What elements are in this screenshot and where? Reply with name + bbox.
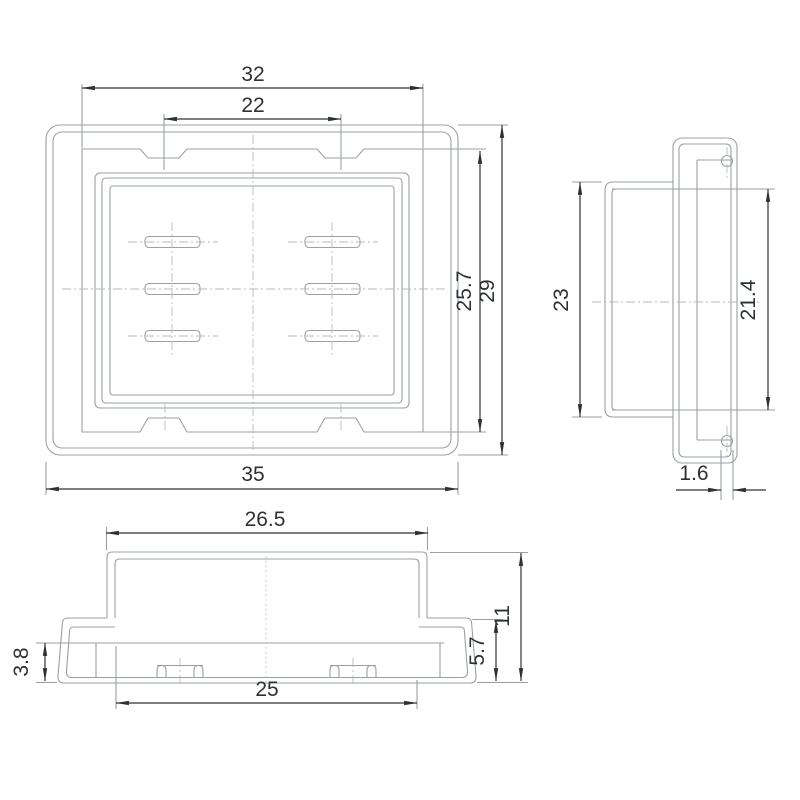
side-view: 23 21.4 1.6 [550, 138, 775, 500]
technical-drawing-page: 32 22 25.7 29 35 [0, 0, 800, 800]
bottom-view: 26.5 25 11 5.7 3.8 [10, 508, 528, 709]
dim-label-bottom-body-width: 26.5 [245, 508, 286, 531]
side-extension-lines [572, 182, 733, 500]
side-body-outline [605, 182, 673, 417]
dim-label-bottom-opening-width: 25 [255, 678, 278, 701]
front-extension-lines [46, 84, 508, 495]
front-flange-outline [46, 125, 458, 455]
bottom-body-outline [107, 552, 427, 618]
dim-label-side-opening-height: 21.4 [737, 279, 760, 320]
bottom-dimensions: 26.5 25 11 5.7 3.8 [10, 508, 521, 703]
bottom-body-inner-edge [115, 559, 419, 618]
front-recess-outline-1 [95, 173, 409, 408]
front-recess-outline-2 [102, 178, 402, 403]
dim-label-bottom-skirt-height: 5.7 [466, 636, 489, 665]
dim-label-front-inner-height: 25.7 [453, 271, 476, 312]
side-body-inner-edge [612, 189, 616, 410]
dim-label-side-body-height: 23 [550, 288, 573, 311]
dim-label-front-notch-spacing: 22 [241, 94, 264, 117]
bottom-skirt-outline [58, 618, 476, 683]
dim-label-side-flange-thickness: 1.6 [679, 462, 708, 485]
bottom-skirt-inner-edge [66, 627, 467, 678]
dim-label-front-body-width: 32 [241, 63, 264, 86]
dim-label-front-flange-width: 35 [241, 463, 264, 486]
dim-label-bottom-lip-height: 3.8 [10, 647, 33, 676]
side-dimensions: 23 21.4 1.6 [550, 182, 768, 490]
dim-label-bottom-total-height: 11 [491, 605, 514, 627]
front-dimensions: 32 22 25.7 29 35 [46, 63, 502, 489]
front-recess-panel [110, 186, 394, 395]
side-flange-outline [673, 138, 737, 463]
dim-label-front-flange-height: 29 [476, 279, 499, 302]
technical-drawing-canvas: 32 22 25.7 29 35 [0, 0, 800, 800]
front-flange-inner-edge [53, 132, 451, 448]
front-view: 32 22 25.7 29 35 [46, 63, 508, 495]
front-body-outline [82, 149, 423, 432]
